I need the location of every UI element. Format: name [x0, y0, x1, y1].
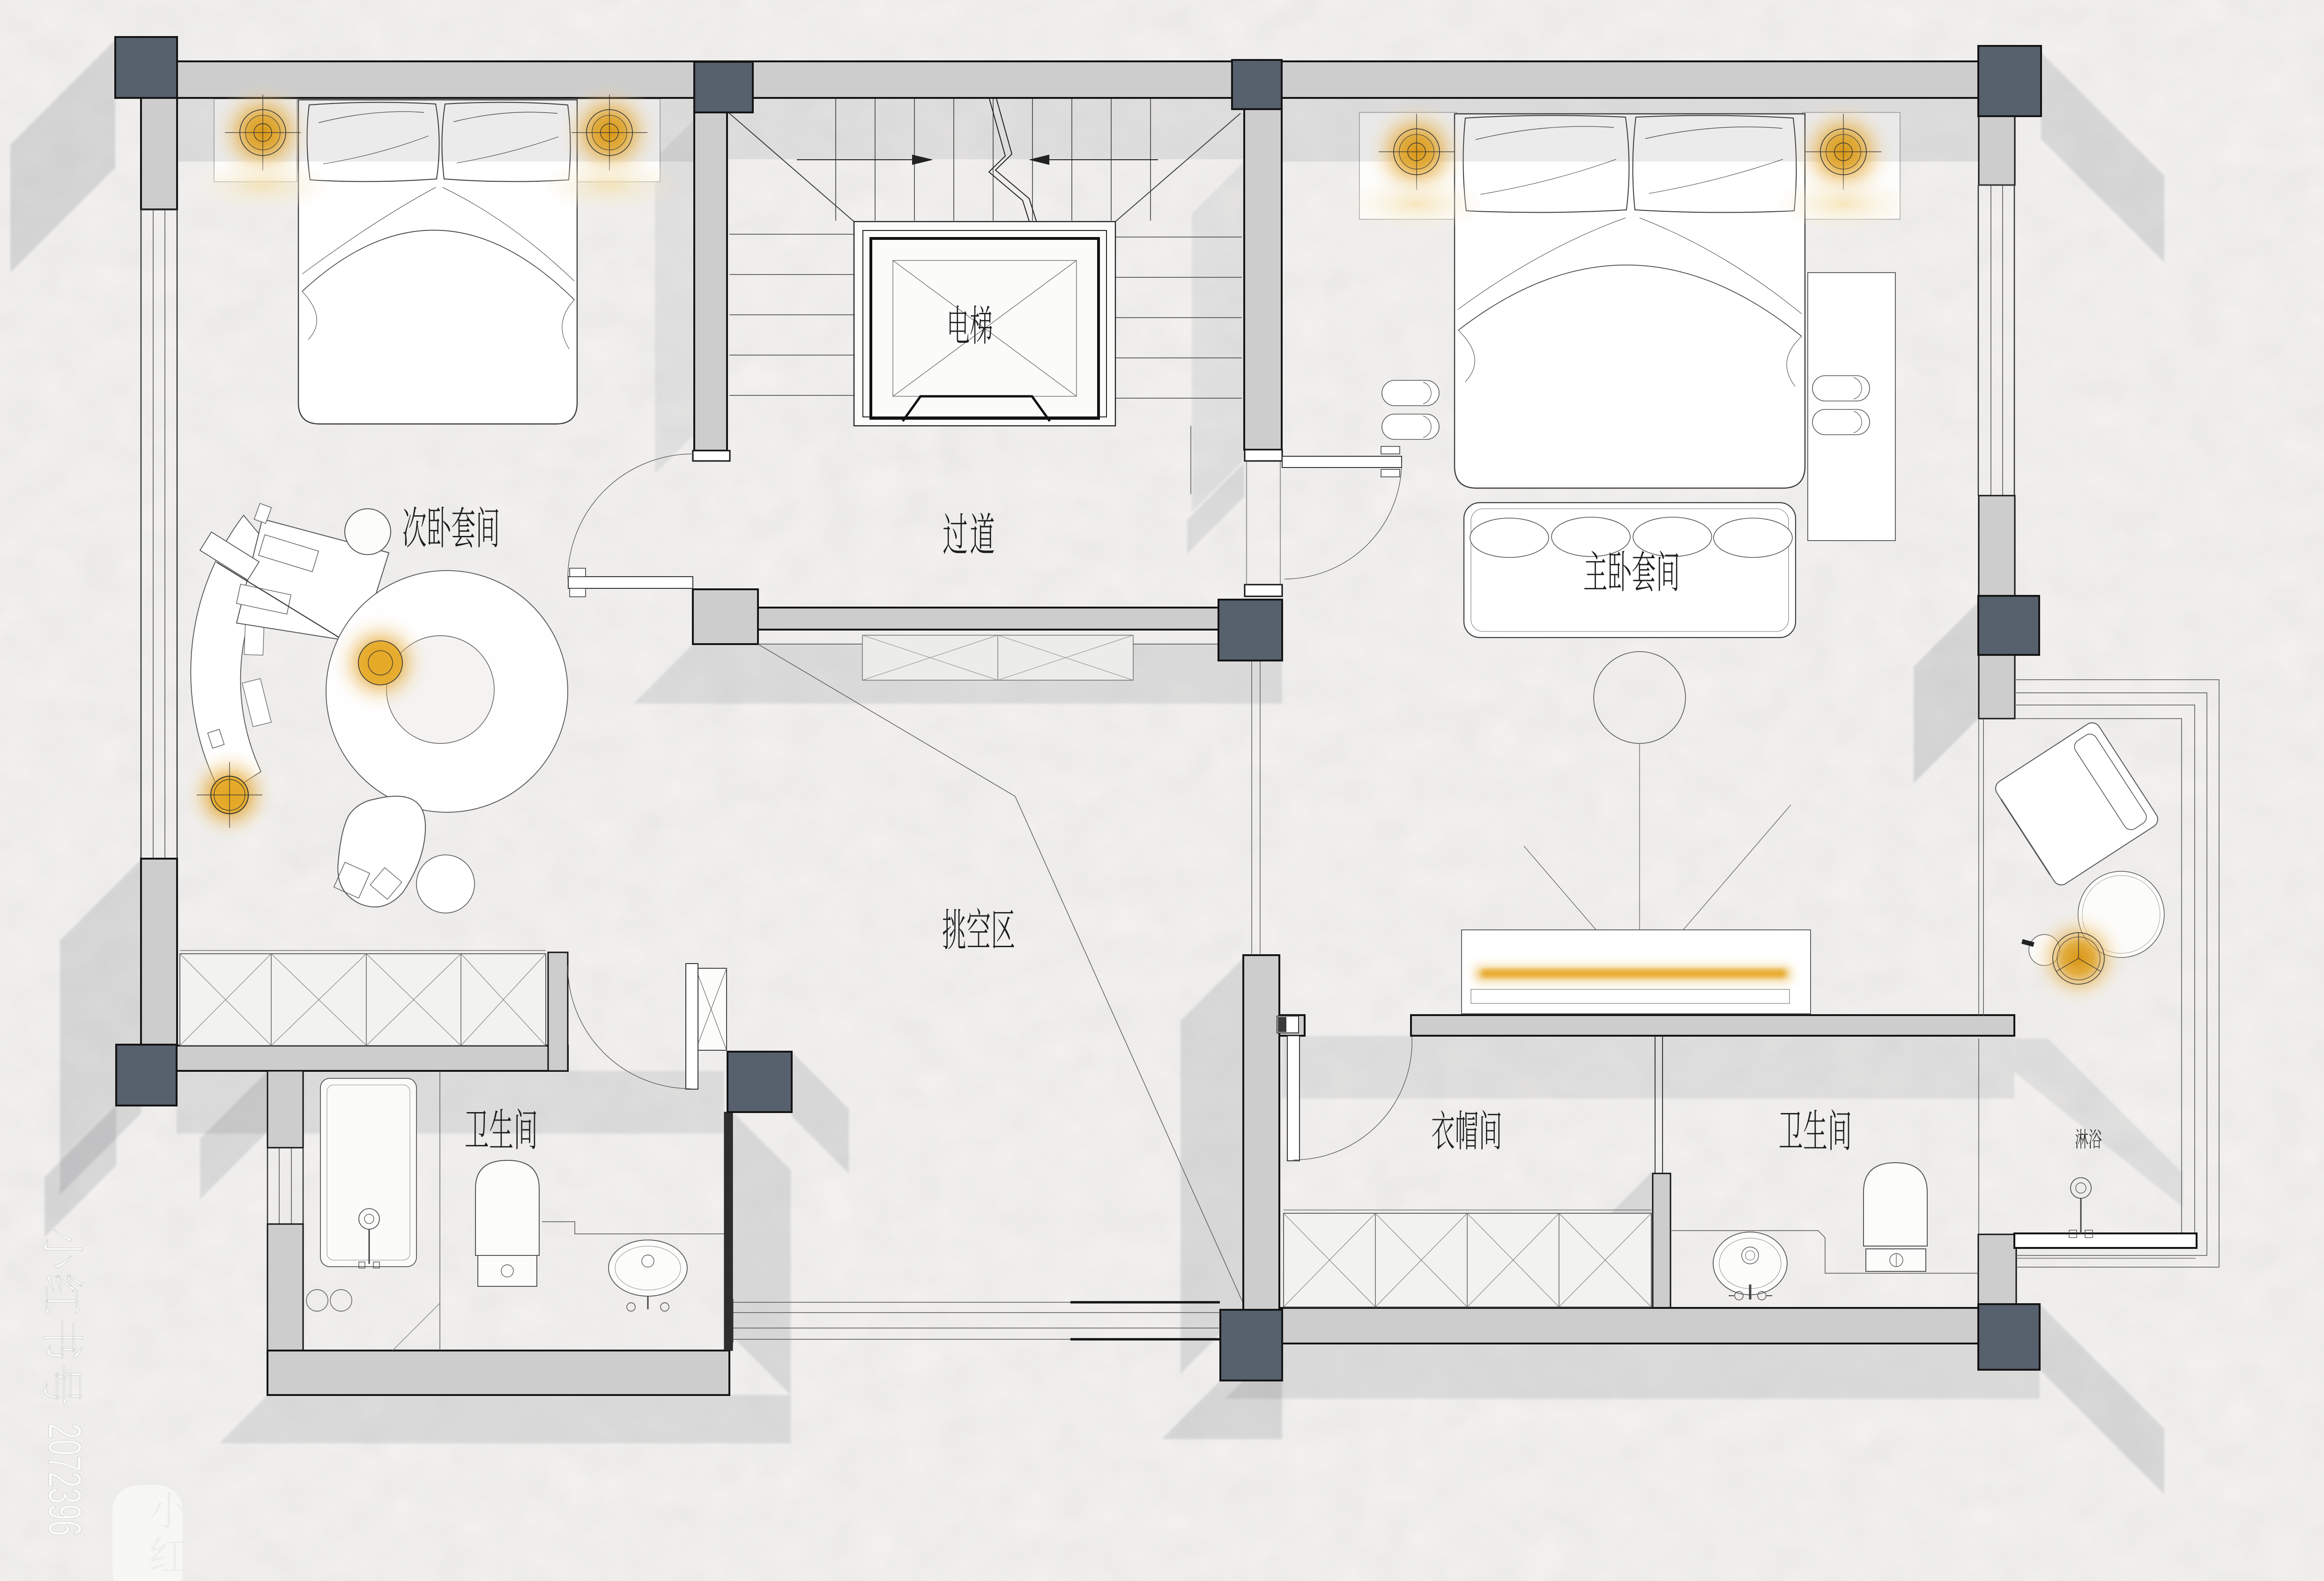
svg-text:2072396: 2072396 [38, 1423, 91, 1536]
